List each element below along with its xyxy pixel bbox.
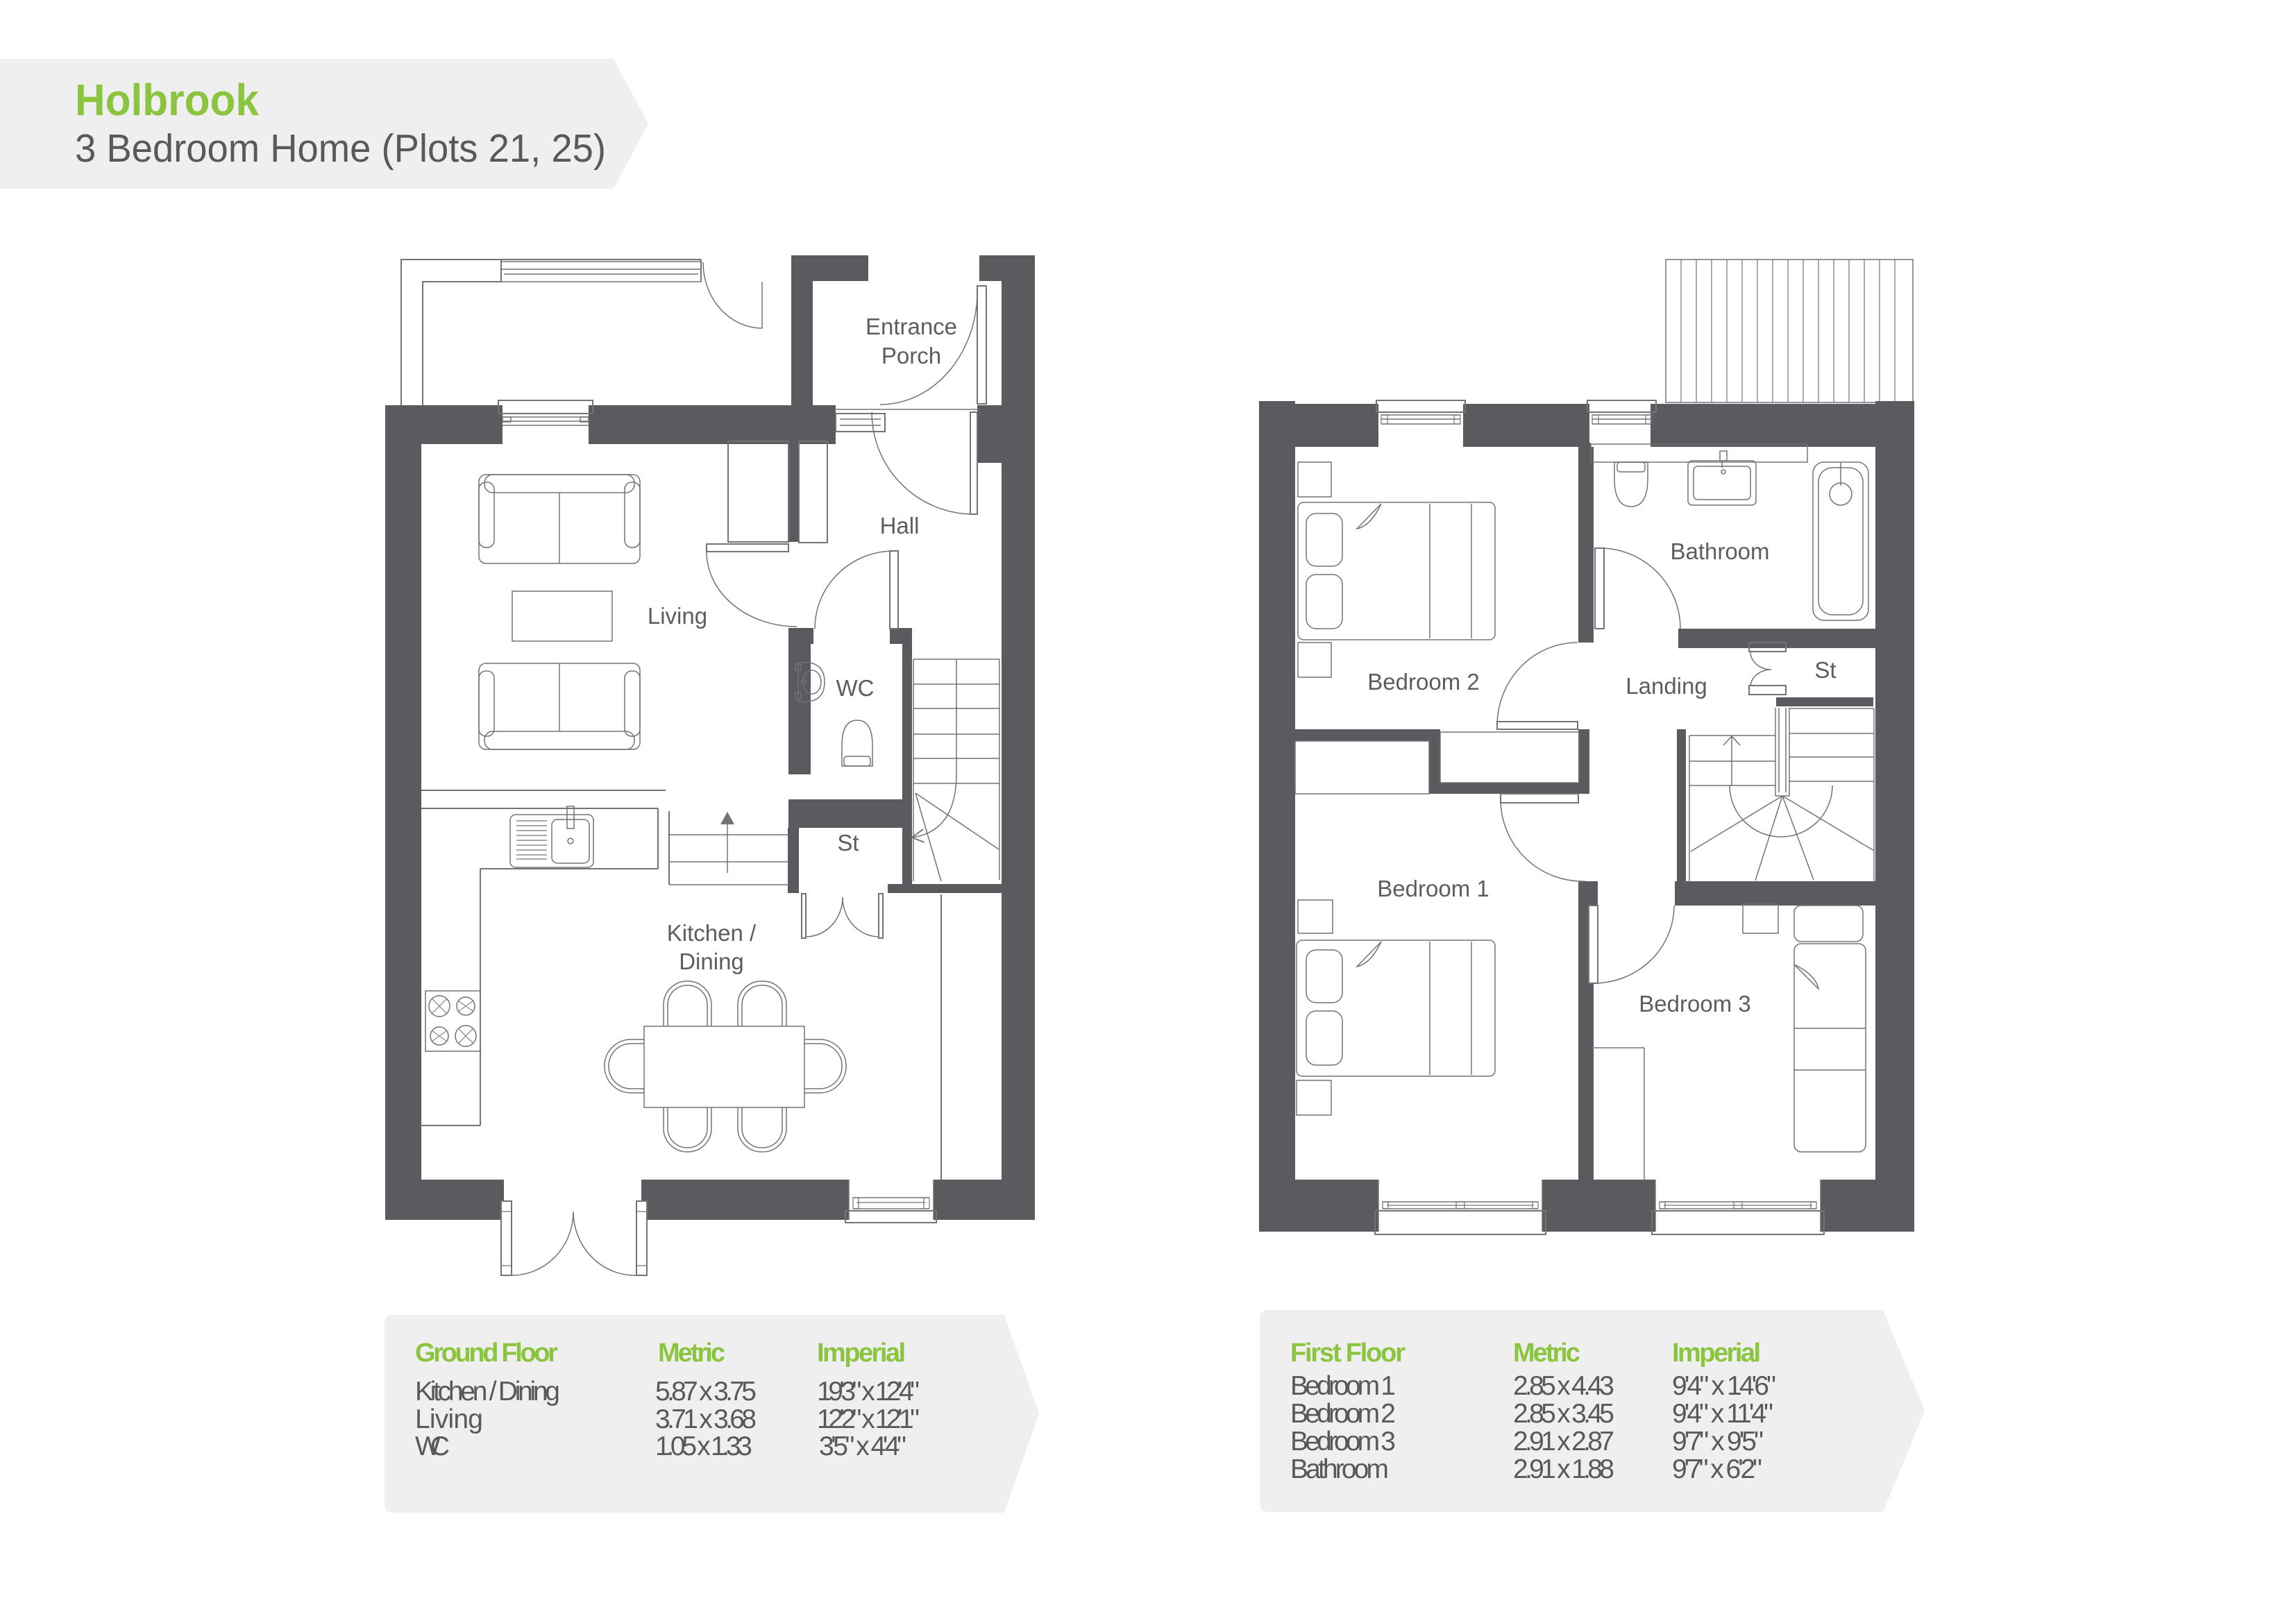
svg-text:Metric: Metric — [658, 1339, 725, 1368]
svg-text:Bedroom 3: Bedroom 3 — [1639, 991, 1750, 1017]
svg-text:Imperial: Imperial — [817, 1339, 906, 1368]
svg-text:Bedroom 3: Bedroom 3 — [1290, 1427, 1396, 1456]
svg-text:Kitchen /: Kitchen / — [667, 920, 757, 946]
svg-text:2.85 x 4.43: 2.85 x 4.43 — [1513, 1371, 1614, 1401]
svg-text:2.91 x 2.87: 2.91 x 2.87 — [1513, 1427, 1614, 1456]
svg-text:19'3" x 12'4": 19'3" x 12'4" — [817, 1377, 920, 1407]
svg-text:Landing: Landing — [1626, 673, 1707, 699]
svg-text:5.87 x 3.75: 5.87 x 3.75 — [655, 1377, 757, 1407]
svg-text:3.71 x 3.68: 3.71 x 3.68 — [655, 1404, 757, 1434]
svg-text:Dining: Dining — [679, 949, 744, 974]
svg-text:3 Bedroom Home (Plots 21, 25): 3 Bedroom Home (Plots 21, 25) — [75, 126, 606, 171]
svg-text:9'7" x 6'2": 9'7" x 6'2" — [1672, 1454, 1762, 1484]
svg-text:Imperial: Imperial — [1672, 1339, 1761, 1368]
svg-text:Bedroom 1: Bedroom 1 — [1377, 876, 1489, 901]
svg-text:1.05 x 1.33: 1.05 x 1.33 — [655, 1431, 752, 1461]
svg-text:Entrance: Entrance — [866, 314, 957, 339]
svg-text:2.85 x 3.45: 2.85 x 3.45 — [1513, 1399, 1614, 1429]
svg-text:3'5" x 4'4": 3'5" x 4'4" — [819, 1431, 906, 1461]
svg-text:Bedroom 2: Bedroom 2 — [1290, 1399, 1396, 1429]
svg-text:St: St — [837, 830, 859, 856]
svg-text:Metric: Metric — [1513, 1339, 1580, 1368]
svg-text:Hall: Hall — [880, 513, 920, 538]
svg-text:WC: WC — [415, 1431, 450, 1461]
svg-text:9'4" x 11'4": 9'4" x 11'4" — [1672, 1399, 1773, 1429]
svg-text:WC: WC — [836, 675, 875, 701]
svg-text:Bedroom 1: Bedroom 1 — [1290, 1371, 1396, 1401]
svg-text:Living: Living — [415, 1404, 483, 1434]
svg-text:9'4" x 14'6": 9'4" x 14'6" — [1672, 1371, 1776, 1401]
svg-text:Holbrook: Holbrook — [75, 75, 259, 125]
svg-text:Bedroom 2: Bedroom 2 — [1367, 669, 1479, 695]
svg-text:Bathroom: Bathroom — [1290, 1454, 1389, 1484]
svg-text:Living: Living — [648, 603, 707, 629]
svg-text:Kitchen / Dining: Kitchen / Dining — [415, 1377, 560, 1407]
svg-text:First Floor: First Floor — [1290, 1339, 1406, 1368]
svg-text:Bathroom: Bathroom — [1670, 538, 1769, 564]
svg-text:Ground Floor: Ground Floor — [415, 1339, 558, 1368]
svg-text:9'7" x 9'5": 9'7" x 9'5" — [1672, 1427, 1764, 1456]
svg-text:Porch: Porch — [881, 343, 941, 368]
svg-text:12'2" x 12'1": 12'2" x 12'1" — [817, 1404, 920, 1434]
svg-text:St: St — [1814, 657, 1836, 683]
svg-text:2.91 x 1.88: 2.91 x 1.88 — [1513, 1454, 1614, 1484]
